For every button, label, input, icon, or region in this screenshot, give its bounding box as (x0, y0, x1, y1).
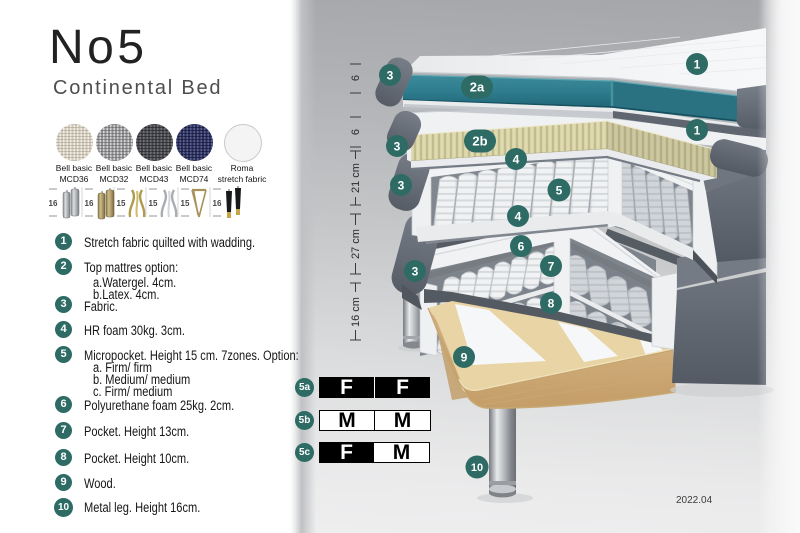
svg-text:1: 1 (694, 57, 701, 71)
svg-text:7: 7 (548, 259, 555, 273)
svg-text:2b: 2b (472, 134, 487, 149)
svg-text:1: 1 (694, 123, 701, 137)
svg-text:8: 8 (548, 296, 555, 310)
svg-text:16 cm: 16 cm (350, 297, 362, 327)
svg-text:3: 3 (412, 264, 419, 278)
svg-text:10: 10 (471, 462, 483, 474)
svg-text:3: 3 (394, 139, 401, 153)
svg-text:21 cm: 21 cm (350, 163, 362, 193)
svg-text:6: 6 (350, 75, 362, 81)
svg-text:27 cm: 27 cm (350, 229, 362, 259)
svg-text:3: 3 (398, 178, 405, 192)
svg-text:5: 5 (556, 183, 563, 197)
svg-text:4: 4 (515, 209, 522, 223)
svg-text:9: 9 (461, 350, 468, 364)
svg-text:2a: 2a (470, 80, 485, 95)
svg-text:4: 4 (513, 152, 520, 166)
svg-text:6: 6 (350, 129, 362, 135)
svg-text:3: 3 (387, 68, 394, 82)
svg-text:6: 6 (518, 239, 525, 253)
